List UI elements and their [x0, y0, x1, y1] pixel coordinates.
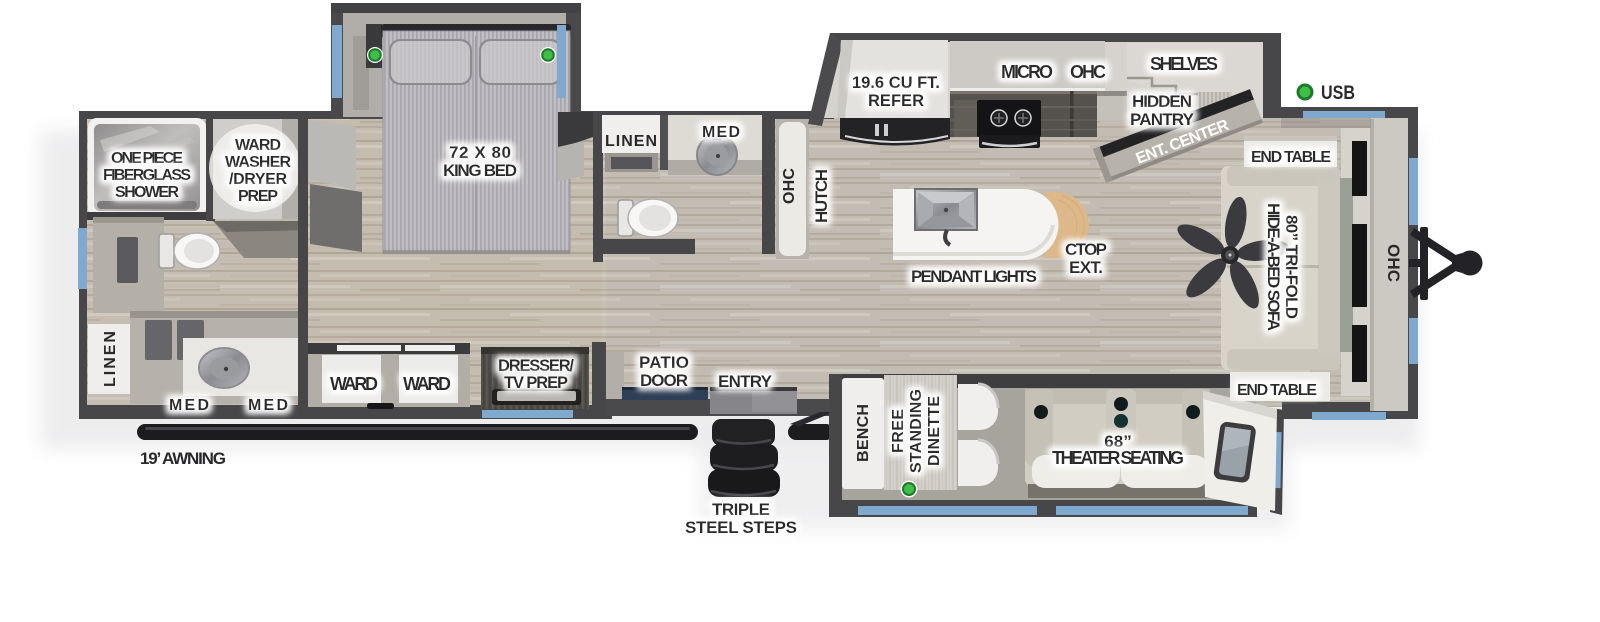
svg-text:MED: MED — [702, 124, 740, 141]
svg-text:REFER: REFER — [868, 92, 924, 110]
svg-text:PANTRY: PANTRY — [1130, 110, 1195, 129]
svg-text:PREP: PREP — [238, 188, 278, 205]
svg-text:PENDANT LIGHTS: PENDANT LIGHTS — [911, 267, 1037, 286]
svg-text:MICRO: MICRO — [1001, 62, 1053, 82]
svg-text:ENTRY: ENTRY — [718, 372, 773, 391]
svg-text:PATIO: PATIO — [639, 353, 689, 372]
svg-text:TV PREP: TV PREP — [504, 374, 568, 392]
svg-text:STANDING: STANDING — [908, 389, 925, 473]
svg-text:DOOR: DOOR — [640, 371, 688, 390]
svg-text:80” TRI-FOLD: 80” TRI-FOLD — [1282, 215, 1301, 319]
svg-text:OHC: OHC — [1070, 62, 1106, 82]
svg-text:/DRYER: /DRYER — [229, 171, 287, 188]
svg-text:OHC: OHC — [781, 168, 798, 204]
svg-text:LINEN: LINEN — [102, 331, 119, 387]
svg-text:EXT.: EXT. — [1069, 258, 1103, 277]
svg-text:HUTCH: HUTCH — [812, 169, 831, 223]
svg-text:TRIPLE: TRIPLE — [712, 500, 770, 519]
svg-text:WARD: WARD — [330, 374, 378, 394]
svg-text:LINEN: LINEN — [605, 133, 657, 150]
svg-text:19’ AWNING: 19’ AWNING — [140, 449, 226, 468]
svg-text:ONE PIECE: ONE PIECE — [111, 150, 183, 167]
svg-text:WARD: WARD — [235, 137, 281, 154]
svg-text:19.6 CU FT.: 19.6 CU FT. — [852, 74, 940, 92]
svg-text:END TABLE: END TABLE — [1237, 382, 1317, 399]
svg-text:DRESSER/: DRESSER/ — [498, 357, 574, 375]
svg-text:WARD: WARD — [403, 374, 451, 394]
svg-text:SHOWER: SHOWER — [115, 184, 179, 201]
svg-text:KING BED: KING BED — [443, 161, 517, 180]
svg-text:FREE: FREE — [890, 409, 907, 453]
svg-text:HIDDEN: HIDDEN — [1132, 92, 1192, 111]
svg-text:WASHER: WASHER — [225, 154, 291, 171]
svg-text:OHC: OHC — [1384, 244, 1403, 282]
svg-text:FIBERGLASS: FIBERGLASS — [103, 167, 191, 184]
svg-text:BENCH: BENCH — [855, 404, 872, 462]
svg-text:END TABLE: END TABLE — [1251, 149, 1331, 166]
svg-text:MED: MED — [169, 397, 209, 414]
svg-text:USB: USB — [1321, 83, 1355, 104]
svg-text:SHELVES: SHELVES — [1150, 54, 1218, 74]
svg-text:STEEL STEPS: STEEL STEPS — [685, 518, 797, 537]
svg-text:MED: MED — [248, 397, 288, 414]
svg-text:THEATER SEATING: THEATER SEATING — [1052, 448, 1184, 468]
svg-text:72 X 80: 72 X 80 — [449, 143, 511, 162]
svg-text:CTOP: CTOP — [1065, 240, 1107, 259]
svg-text:HIDE-A-BED SOFA: HIDE-A-BED SOFA — [1264, 203, 1283, 331]
svg-text:DINETTE: DINETTE — [926, 396, 943, 466]
